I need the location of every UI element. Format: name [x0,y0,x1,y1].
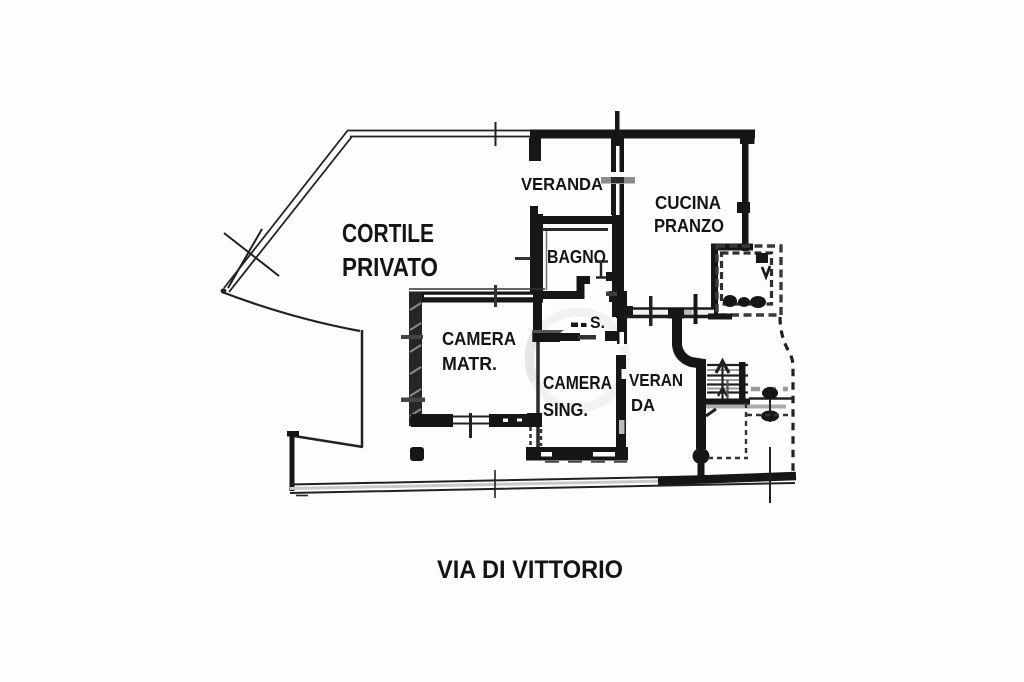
svg-text:PRIVATO: PRIVATO [342,252,438,282]
svg-text:CUCINA: CUCINA [655,193,721,213]
svg-text:CORTILE: CORTILE [342,218,434,248]
svg-text:VIA DI VITTORIO: VIA DI VITTORIO [437,556,623,584]
svg-text:DA: DA [631,395,655,415]
svg-text:MATR.: MATR. [442,354,497,374]
svg-text:BAGNO: BAGNO [547,246,606,267]
svg-text:VERANDA: VERANDA [521,174,603,194]
svg-text:CAMERA: CAMERA [442,329,516,349]
svg-text:SING.: SING. [543,400,588,420]
svg-text:VERAN: VERAN [629,370,683,390]
svg-text:S.: S. [590,313,605,332]
svg-text:CAMERA: CAMERA [543,373,612,393]
svg-text:PRANZO: PRANZO [654,216,724,236]
